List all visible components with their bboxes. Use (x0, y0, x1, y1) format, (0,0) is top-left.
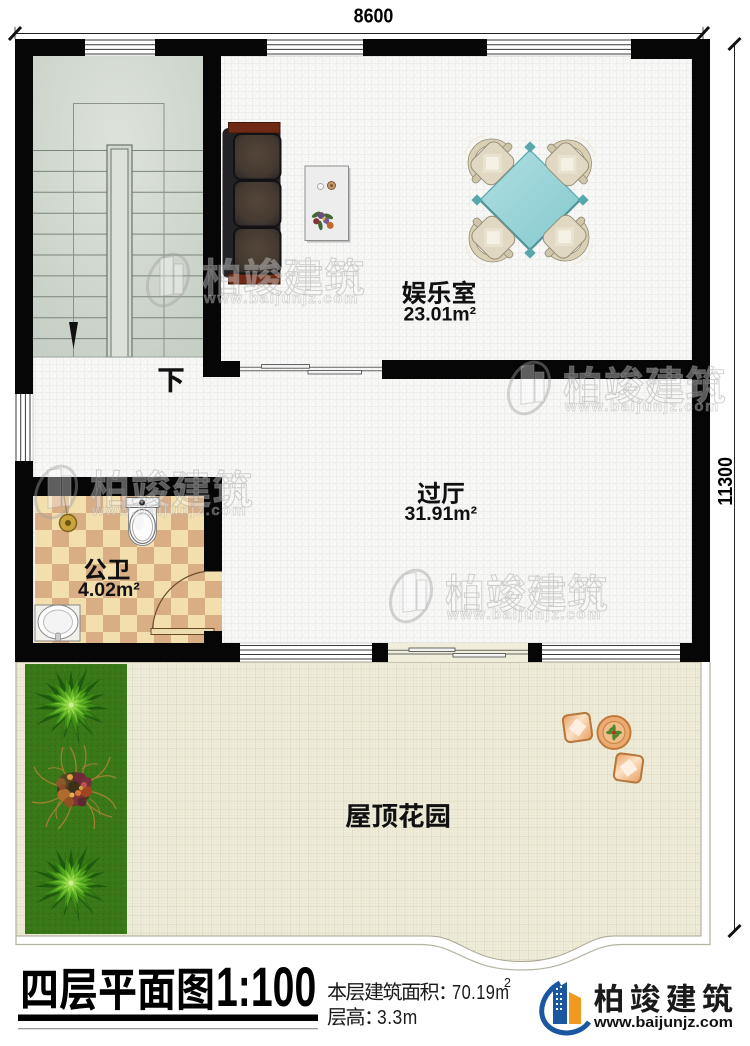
svg-text:1:100: 1:100 (216, 956, 316, 1019)
svg-text:31.91m²: 31.91m² (405, 503, 478, 525)
svg-text:3.3m: 3.3m (377, 1007, 418, 1030)
svg-text:70.19m: 70.19m (452, 980, 510, 1003)
svg-text:11300: 11300 (715, 457, 737, 506)
svg-text:23.01m²: 23.01m² (404, 304, 477, 326)
svg-text:www.baijunjz.com: www.baijunjz.com (593, 1015, 733, 1031)
svg-text:2: 2 (504, 976, 511, 990)
svg-text:8600: 8600 (354, 5, 394, 27)
svg-text:4.02m²: 4.02m² (78, 579, 140, 601)
